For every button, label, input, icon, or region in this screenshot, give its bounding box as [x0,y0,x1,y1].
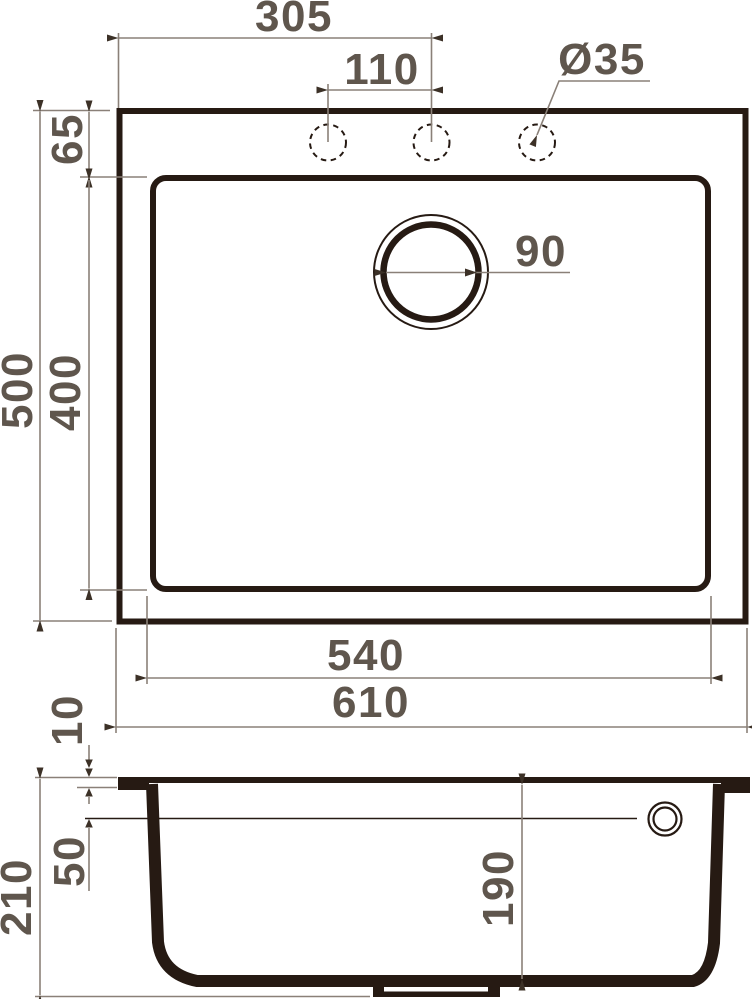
dim-label-110: 110 [344,45,419,94]
dim-label-610: 610 [332,678,410,727]
dim-label-90: 90 [515,227,567,276]
dim-label-10: 10 [43,694,92,746]
arrowhead [85,788,93,797]
drawing-svg: 305 110 Ø35 90 500 65 400 540 [0,0,752,999]
dim-label-305: 305 [255,0,333,41]
dim-label-500: 500 [0,351,42,429]
section-left-lip [118,783,149,790]
section-right-rim [721,783,750,793]
faucet-hole-right [519,125,555,161]
dim-label-65: 65 [43,113,92,165]
arrowhead [85,819,93,828]
sink-outer-outline [120,111,746,622]
section-bottom-recess-groove [384,987,488,992]
arrowhead [85,769,93,778]
bowl-outline [153,178,708,589]
overflow-hole-inner [654,808,677,831]
dim-label-190: 190 [474,849,523,927]
section-view: 10 50 210 190 [0,694,750,997]
dim-label-540: 540 [327,631,405,680]
dim-label-210: 210 [0,858,41,936]
top-view: 305 110 Ø35 90 500 65 400 540 [0,0,747,733]
dim-label-400: 400 [41,353,90,431]
dim-label-50: 50 [45,835,94,887]
section-bowl-profile [152,784,719,981]
arrowhead [85,760,93,769]
sink-technical-drawing: 305 110 Ø35 90 500 65 400 540 [0,0,752,999]
dim-label-hole-diameter: Ø35 [558,35,646,84]
